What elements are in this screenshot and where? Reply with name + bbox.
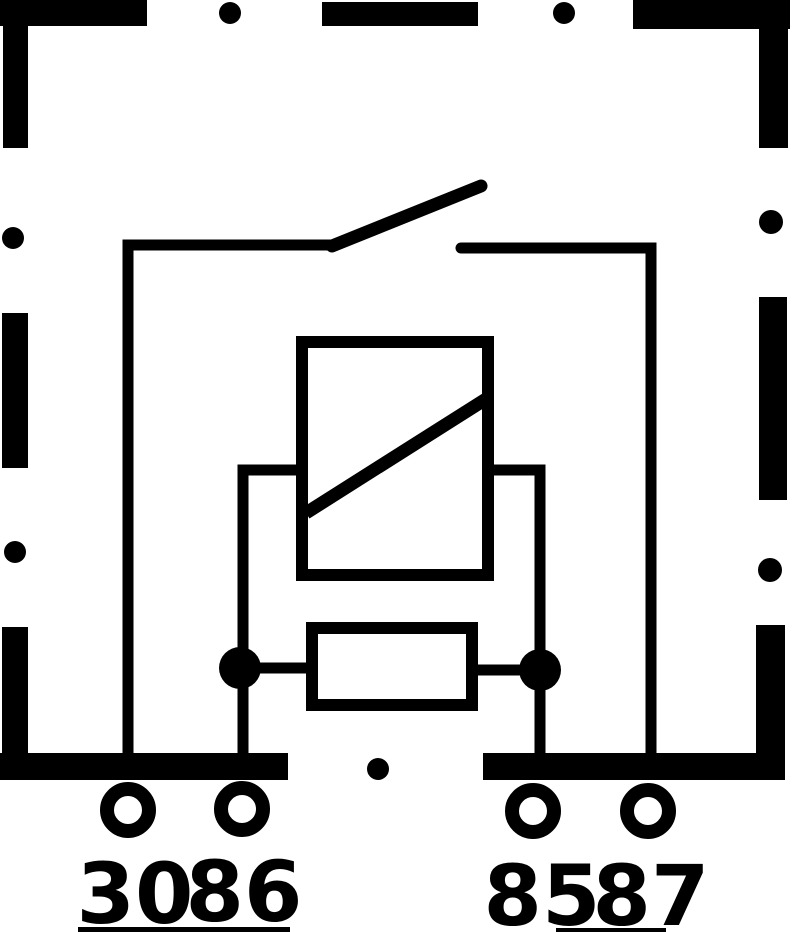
- switch-blade: [332, 186, 481, 246]
- border-left-dot-2: [4, 541, 26, 563]
- border-top-dot-1: [219, 2, 241, 24]
- resistor-box: [312, 628, 472, 705]
- coil-right-bracket-terminal-85-wire: [493, 470, 540, 762]
- border-bottom-dot: [367, 758, 389, 780]
- terminal-labels: 30 86 85 87: [77, 843, 710, 932]
- border-top-dash: [322, 2, 478, 26]
- border-top-dot-2: [553, 2, 575, 24]
- border-bottom-bar-right: [483, 753, 785, 780]
- border-bottom-left-corner-v: [2, 627, 28, 780]
- border-top-right-corner-v: [759, 0, 788, 148]
- terminal-pin-87: [627, 790, 669, 832]
- terminal-label-30: 30: [77, 845, 194, 932]
- terminal-pin-86: [221, 788, 263, 830]
- terminal-pin-85: [512, 790, 554, 832]
- terminal-label-87: 87: [593, 847, 710, 932]
- terminal-label-86: 86: [186, 843, 303, 932]
- junction-dot-right: [519, 649, 561, 691]
- terminal-label-85: 85: [484, 847, 601, 932]
- border-left-dot-1: [2, 227, 24, 249]
- relay-schematic-canvas: 30 86 85 87: [0, 0, 800, 932]
- circuit: [128, 186, 651, 762]
- relay-schematic-drawing: 30 86 85 87: [0, 0, 800, 932]
- junction-dot-left: [219, 647, 261, 689]
- border-top-left-corner-v: [3, 0, 28, 148]
- border-right-dot-1: [759, 210, 783, 234]
- border-right-dash: [759, 297, 787, 500]
- terminal-pin-30: [107, 789, 149, 831]
- coil-left-bracket-terminal-86-wire: [243, 470, 297, 762]
- border-left-dash: [2, 313, 28, 468]
- border-right-dot-2: [758, 558, 782, 582]
- terminal-pins: [107, 788, 669, 832]
